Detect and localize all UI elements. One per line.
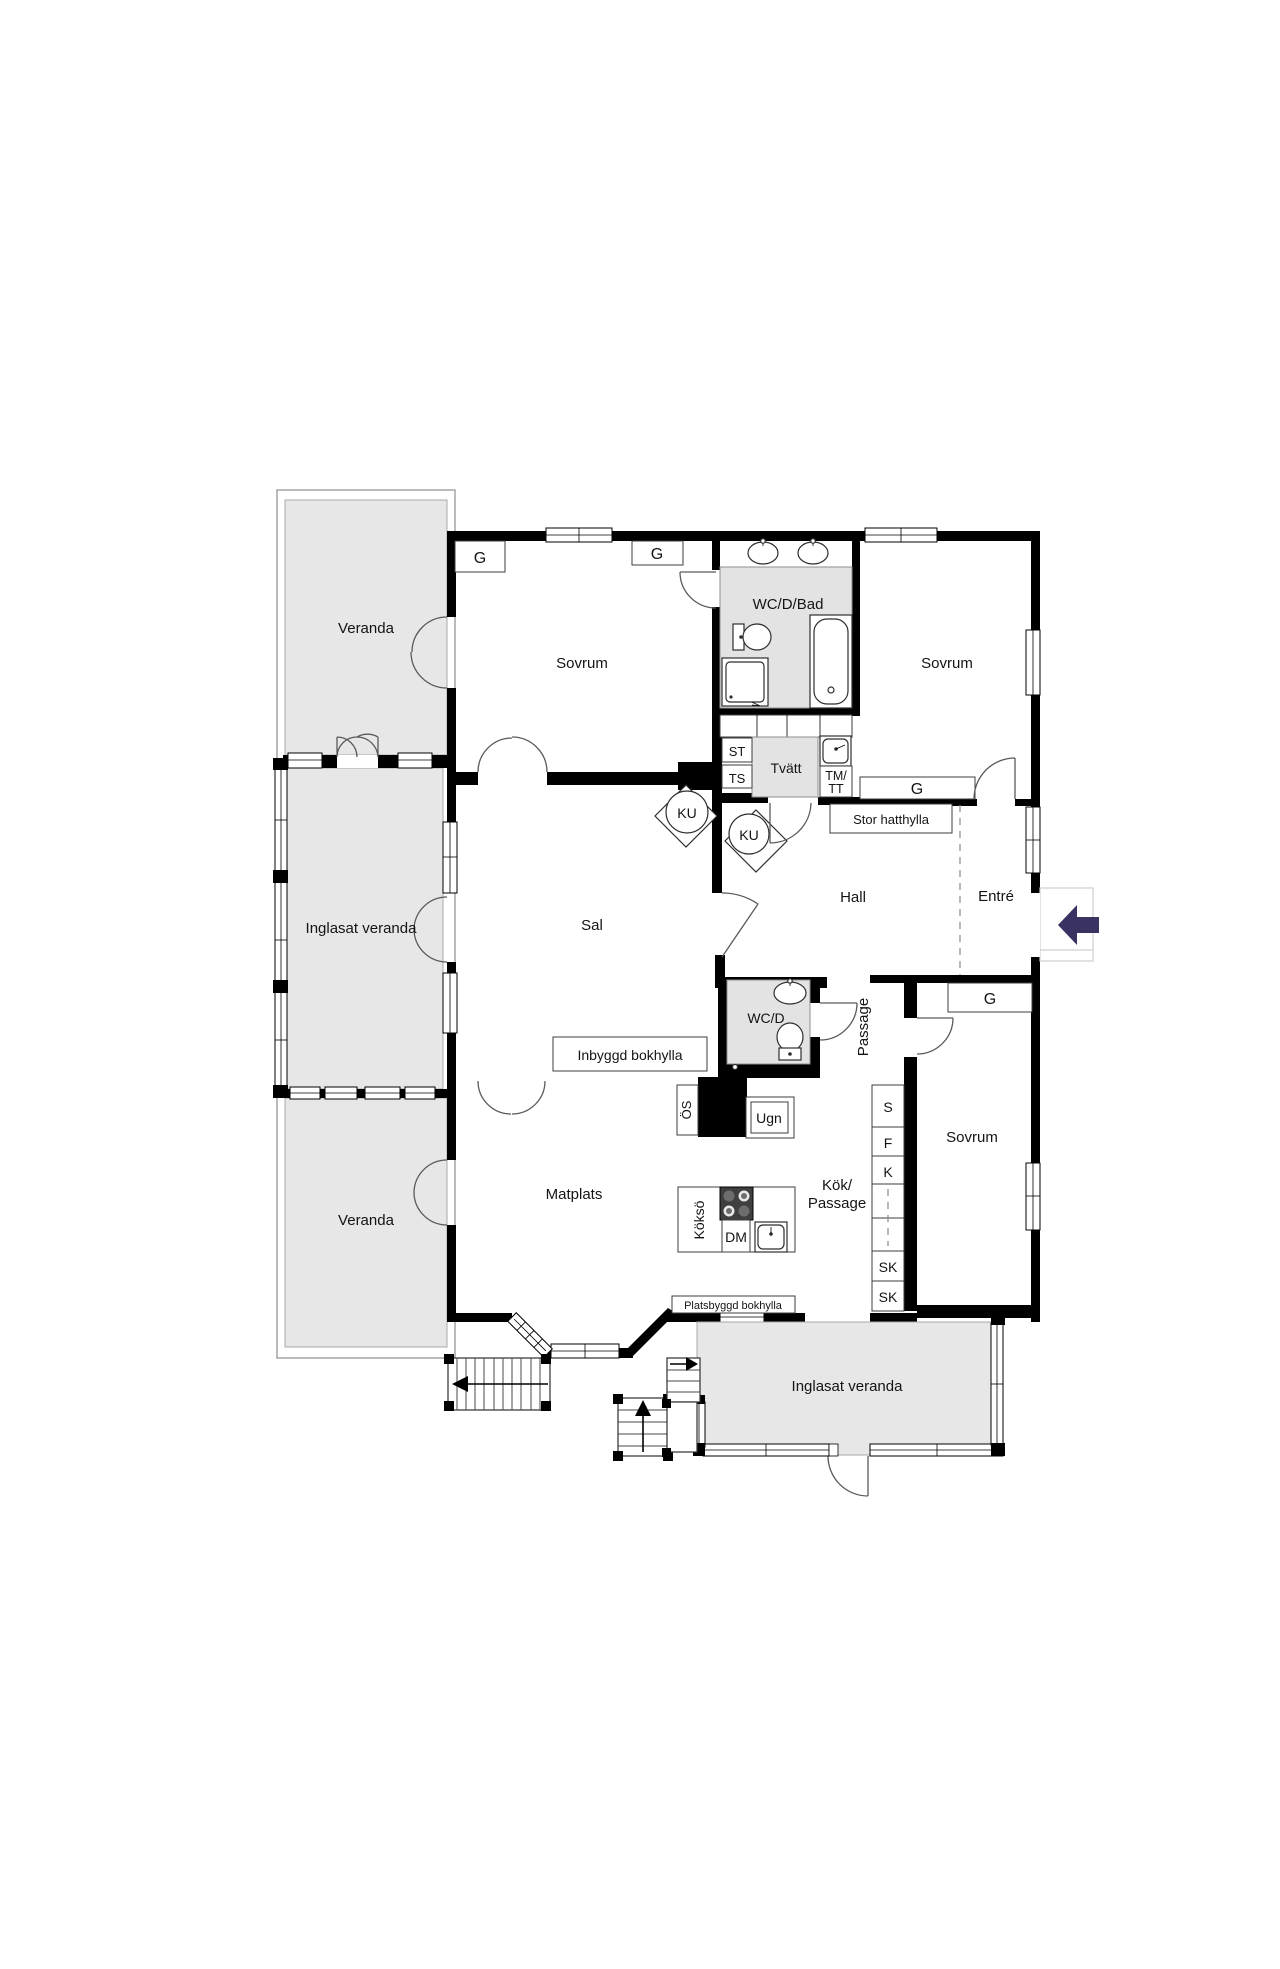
room-label-sovrum-nw: Sovrum [556,655,608,672]
wardrobe-label: G [651,546,663,563]
room-label-sal: Sal [581,917,603,934]
room-label-matplats: Matplats [546,1186,603,1203]
door-passage-sovrum-se [917,1018,953,1054]
st-label: ST [729,744,746,759]
wardrobe-label: G [474,550,486,567]
window [870,1444,1003,1456]
tvatt-label: Tvätt [770,760,801,776]
custom-bookshelf-label: Platsbyggd bokhylla [684,1300,783,1312]
room-label-passage: Passage [855,998,872,1056]
laundry-sink-icon [820,736,851,766]
dishwasher-label: DM [725,1229,747,1245]
wc-d-bad-label: WC/D/Bad [753,596,824,613]
window [865,528,937,542]
window [405,1087,435,1099]
room-label-kok-2: Passage [808,1195,866,1212]
bathtub-icon [810,615,852,708]
toilet-icon [777,1023,803,1060]
cabinet-label: SK [879,1289,898,1305]
window [288,753,322,768]
double-door-sal-matplats [478,1081,545,1114]
bathroom-wc-d-bad: WC/D/Bad [720,538,852,708]
window-diagonal [508,1313,553,1358]
door-veranda-out [828,1456,868,1496]
window [1026,807,1040,873]
room-label-kok-1: Kök/ [822,1177,853,1194]
window [551,1344,619,1358]
laundry-room: Tvätt ST TS TM/ TT [720,715,852,797]
window [325,1087,357,1099]
floorplan-page: G G G G Stor hatthylla Inbyggd bokhylla … [0,0,1280,1969]
window [991,1323,1003,1445]
laundry-cabinet-row [720,715,852,737]
bookshelf-label: Inbyggd bokhylla [577,1047,682,1063]
window [398,753,432,768]
window [443,822,457,893]
window [1026,630,1040,695]
door-wcd-passage [820,1003,857,1040]
wc-d-label: WC/D [747,1010,784,1026]
room-label-sovrum-ne: Sovrum [921,655,973,672]
island-label: Köksö [691,1200,707,1239]
ts-label: TS [729,771,746,786]
cabinet-column: S F K SK SK [872,1085,904,1311]
tiled-stove-ku-hall: KU [725,810,787,872]
shower-icon [722,658,768,706]
wc-d-room: WC/D [727,978,810,1070]
window [443,973,457,1033]
tiled-stove-ku-sal: KU [655,785,717,847]
window [546,528,612,542]
oven-label: Ugn [756,1110,782,1126]
door-sovrum-bad [680,572,716,608]
hat-shelf-label: Stor hatthylla [853,812,930,827]
window [1026,1163,1040,1230]
entry-ramp [662,1357,700,1457]
freezer-label: F [884,1135,893,1151]
room-label-veranda-top: Veranda [338,620,395,637]
wardrobe-label: G [984,991,996,1008]
sink-icon [748,538,778,564]
stairs-south [613,1357,700,1461]
entry [1031,888,1099,961]
veranda-divider-wall-bottom [283,1087,447,1099]
glazing-west-band [273,758,288,1098]
wardrobe-label: G [911,781,923,798]
stairs-west [444,1354,551,1411]
floorplan-drawing: G G G G Stor hatthylla Inbyggd bokhylla … [0,0,1280,1969]
door-sal-hall [722,893,758,957]
room-label-sovrum-se: Sovrum [946,1129,998,1146]
kitchen-sink-icon [755,1222,787,1252]
window [365,1087,400,1099]
stove-icon [720,1187,753,1220]
kitchen-island: Köksö DM [678,1187,795,1252]
washer-label-1: TM/ [825,769,847,783]
cabinet-label: SK [879,1259,898,1275]
room-label-inglasat-left: Inglasat veranda [306,920,418,937]
fridge-label: K [883,1164,893,1180]
room-label-entre: Entré [978,888,1014,905]
pantry-label: S [883,1099,892,1115]
landing [667,1402,697,1452]
ku-label: KU [677,805,696,821]
room-label-veranda-bottom: Veranda [338,1212,395,1229]
washer-label-2: TT [828,782,844,796]
double-door-sal-sovrum [478,737,547,772]
room-label-hall: Hall [840,889,866,906]
sink-icon [798,538,828,564]
os-label: ÖS [679,1100,694,1119]
toilet-icon [733,624,771,650]
window [290,1087,320,1099]
room-label-inglasat-bottom: Inglasat veranda [792,1378,904,1395]
window [703,1444,829,1456]
door-hall-sovrum-ne [974,758,1015,799]
ku-label: KU [739,827,758,843]
